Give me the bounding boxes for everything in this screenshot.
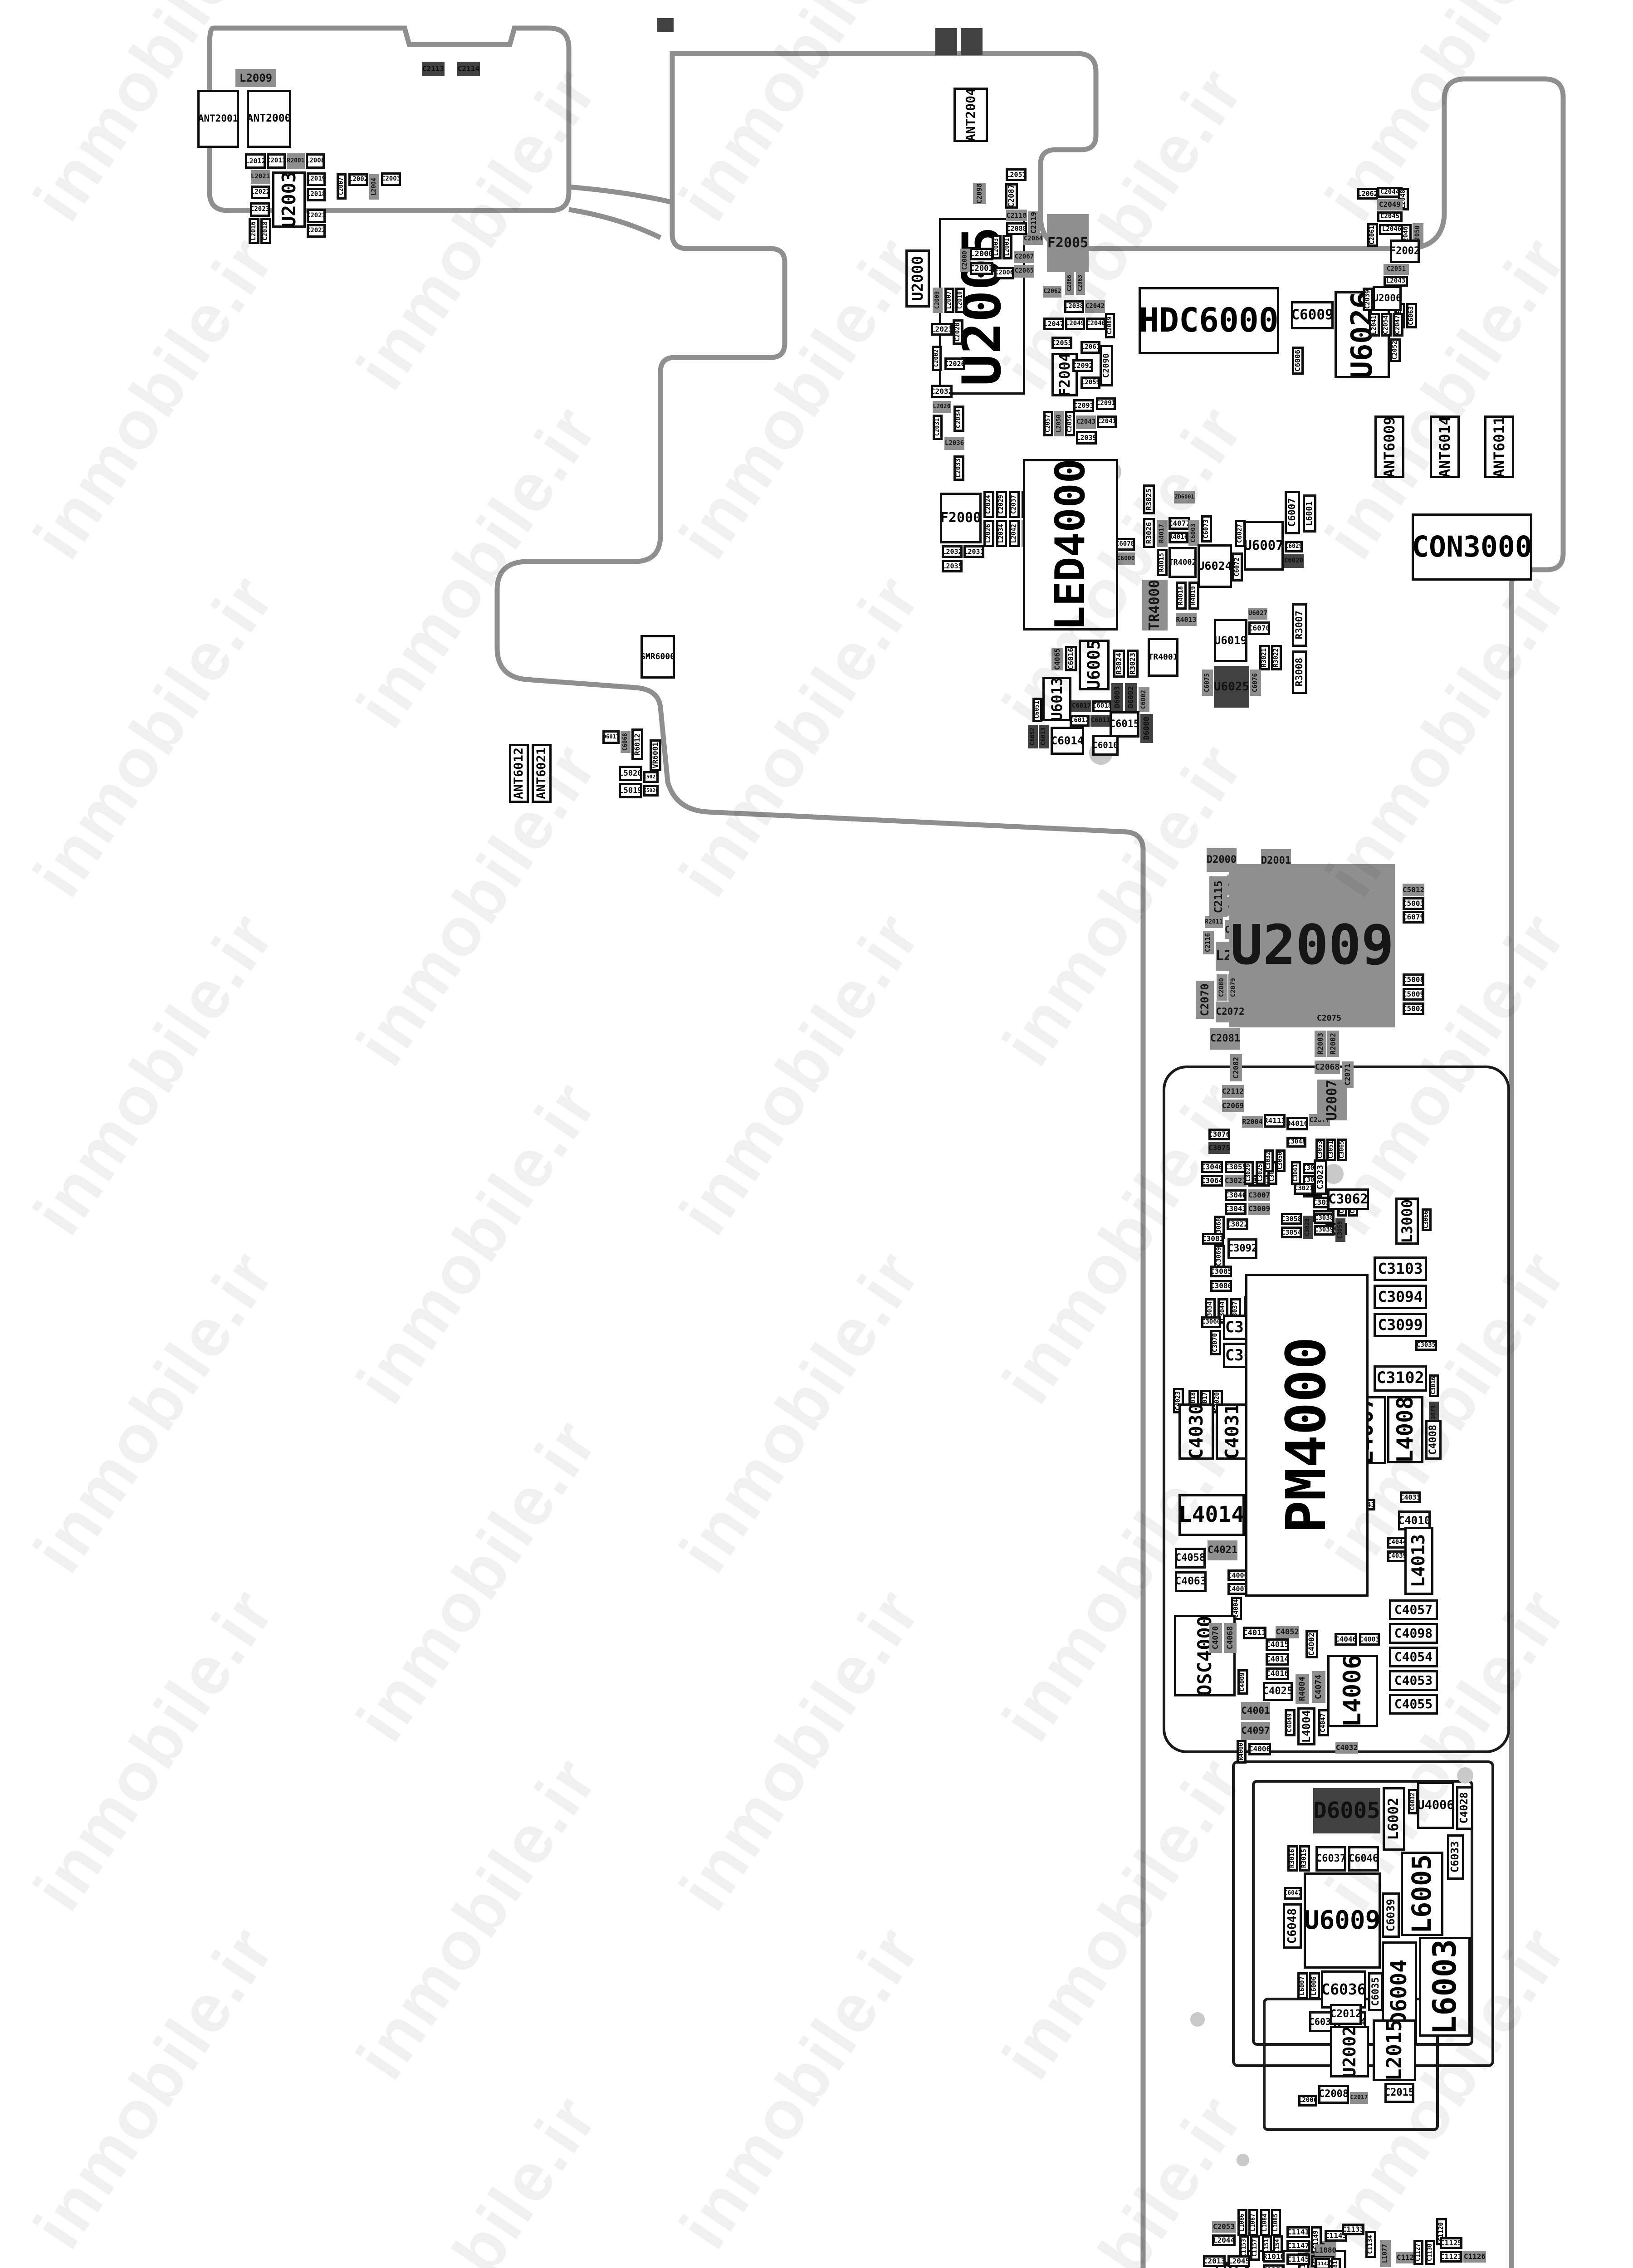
component-tr4002: TR4002 — [1169, 547, 1197, 578]
component-label: C3025 — [1258, 1164, 1263, 1182]
component-c6047: C6047 — [1284, 1887, 1302, 1900]
component-label: C2119 — [1030, 212, 1037, 234]
component-label: C6011 — [1091, 718, 1110, 723]
component-label: U6007 — [1244, 539, 1283, 552]
component-c6076: C6076 — [1250, 670, 1261, 696]
component-l1077: L1077 — [1380, 2240, 1391, 2267]
component-zd6001: ZD6001 — [1174, 491, 1195, 503]
component-c6037: C6037 — [1315, 1846, 1346, 1872]
component-c3085: C3085 — [1210, 1266, 1232, 1277]
component-label: L2019 — [307, 176, 326, 182]
component-label: R4113 — [1264, 1117, 1286, 1124]
component-label: C3028 — [1305, 1218, 1310, 1236]
component-label: C2009 — [935, 291, 940, 309]
component-label: C2028 — [955, 323, 961, 342]
component-c4015: C4015 — [1266, 1638, 1289, 1651]
component-label: C1125 — [1440, 2239, 1462, 2246]
component-c2032: C2032 — [931, 385, 953, 398]
components-layer: L2009ANT2001ANT2000L2012C2011R2001L2008L… — [0, 0, 1633, 2268]
component-label: TR4000 — [1148, 580, 1161, 631]
component-l2061: L2061 — [1081, 341, 1100, 354]
component-label: C2037 — [1011, 495, 1017, 514]
component-label: C2033 — [956, 459, 962, 478]
component-c2080: C2080 — [1217, 974, 1227, 1001]
component-r3008: R3008 — [1292, 650, 1307, 694]
component-c2026: C2026 — [944, 357, 965, 370]
component-r3026: R3026 — [1143, 518, 1155, 548]
component-c3081: C3081 — [1202, 1233, 1224, 1245]
component-c6016: C6016 — [1065, 646, 1077, 671]
component-c4097: C4097 — [1241, 1722, 1270, 1740]
component-label: L2036 — [945, 440, 964, 446]
component-label: C3043 — [1225, 1205, 1247, 1212]
component-label: CON3000 — [1412, 533, 1532, 561]
component-c4009: C4009 — [1237, 1669, 1248, 1695]
component-l2006: L2006 — [1298, 2095, 1317, 2107]
component-l2016: L2016 — [249, 218, 259, 244]
component-c6013: C6013 — [1039, 725, 1049, 748]
component-label: R3025 — [1145, 489, 1152, 510]
component-label: C2024 — [986, 495, 992, 514]
component-label: ANT6014 — [1438, 416, 1452, 478]
component-label: L4008 — [1395, 1396, 1416, 1463]
component-l6002: L6002 — [1383, 1787, 1405, 1851]
component-label: ANT6011 — [1492, 416, 1506, 478]
component-d6017: D6017 — [602, 730, 620, 744]
component-c2052: C2052 — [1390, 338, 1401, 362]
component-label: L6001 — [1305, 501, 1313, 526]
component-u2009: U2009 — [1229, 864, 1395, 1027]
component-label: C1141 — [1287, 2229, 1309, 2235]
component-label: L2049 — [1066, 321, 1085, 327]
component-u4006: U4006 — [1417, 1782, 1454, 1829]
component-ant6011: ANT6011 — [1484, 415, 1514, 478]
component-label: C2039 — [1365, 290, 1371, 309]
component-c3035: C3035 — [1415, 1340, 1437, 1351]
component-label: U6027 — [1248, 611, 1267, 616]
component-c2024: C2024 — [983, 491, 994, 518]
component-label: L2038 — [1065, 303, 1084, 309]
component-label: L6005 — [1409, 1854, 1434, 1934]
component-label: C4052 — [1276, 1628, 1299, 1636]
component-label: C6033 — [1451, 1841, 1461, 1872]
component-label: C4044 — [1388, 1540, 1407, 1545]
component-c3016: C3016 — [1429, 1374, 1439, 1397]
component-r4017: R4017 — [1157, 520, 1168, 547]
component-label: L2022 — [251, 189, 270, 195]
component-label: C6016 — [1067, 648, 1074, 670]
component-label: C6046 — [1349, 1854, 1379, 1864]
component-c2088: C2088 — [1006, 222, 1027, 235]
component-c2049: C2049 — [1377, 199, 1403, 210]
component-l2057: L2057 — [1006, 168, 1027, 181]
component-c2113: C2113 — [422, 62, 445, 76]
component-l2023: L2023 — [931, 323, 953, 336]
component-label: C3055 — [1225, 1163, 1247, 1170]
component-ant2001: ANT2001 — [197, 90, 239, 148]
component-label: L4014 — [1179, 1505, 1245, 1525]
component-label: C3023 — [1316, 1165, 1324, 1189]
component-label: C2052 — [1392, 341, 1398, 360]
component-c3061: C3061 — [1291, 1161, 1301, 1185]
component-label: F2004 — [1058, 353, 1071, 396]
component-label: L2044 — [1213, 2237, 1235, 2244]
component-c5009: C5009 — [1403, 988, 1424, 1001]
component-c1142: C1142 — [1315, 2258, 1330, 2268]
component-c4033: C4033 — [1400, 1491, 1421, 1503]
component-c4063: C4063 — [1175, 1571, 1207, 1592]
component-label: L2015 — [1385, 2019, 1404, 2081]
component-c4098: C4098 — [1389, 1623, 1438, 1644]
component-c2022: C2022 — [307, 224, 326, 238]
component-r3022: R3022 — [1271, 645, 1282, 670]
component-label: D4016 — [1286, 1120, 1308, 1127]
component-label: L2061 — [1081, 344, 1100, 350]
component-label: C2057 — [1046, 415, 1051, 432]
component-label: R4013 — [1176, 616, 1196, 623]
component-c2012: C2012 — [1330, 2004, 1362, 2025]
component-c3048: C3048 — [1286, 1137, 1306, 1148]
component-label: C2081 — [1210, 1034, 1240, 1044]
component-label: L2041 — [1371, 315, 1377, 334]
component-c2093: C2093 — [1073, 399, 1094, 412]
component-label: C2021 — [307, 213, 326, 219]
component-c2033: C2033 — [953, 455, 964, 481]
component-label: C6072 — [1234, 557, 1240, 577]
component-u6005: U6005 — [1079, 640, 1110, 690]
component-label: C4055 — [1394, 1698, 1433, 1711]
component-c2092: C2092 — [1072, 359, 1093, 372]
component-label: C6068 — [623, 733, 628, 751]
component-c4046: C4046 — [1335, 1633, 1357, 1646]
component-label: C3059 — [1338, 1221, 1343, 1239]
component-c2114: C2114 — [457, 62, 480, 76]
component-l2007: L2007 — [944, 288, 954, 313]
component-label: C2063 — [1078, 275, 1083, 291]
component-label: L1087 — [1251, 2214, 1256, 2231]
component-r4015: R4015 — [1157, 549, 1168, 576]
component-c2013: C2013 — [1203, 2255, 1226, 2267]
component-c2037: C2037 — [1009, 491, 1020, 518]
component-c2075: C2075 — [1316, 1012, 1342, 1025]
component-label: C4033 — [1400, 1494, 1420, 1501]
component-label: C2010 — [958, 291, 963, 309]
component-label: L2046 — [1382, 226, 1401, 232]
component-label: U6005 — [1086, 640, 1102, 690]
component-u2003: U2003 — [272, 171, 306, 228]
component-label: C2007 — [339, 177, 344, 195]
component-label: C3027 — [1225, 1177, 1247, 1184]
component-c4008: C4008 — [1425, 1420, 1442, 1460]
component-c4025: C4025 — [1263, 1682, 1293, 1701]
component-c2068: C2068 — [1315, 1061, 1340, 1074]
component-label: C4097 — [1241, 1726, 1270, 1735]
component-label: HDC6000 — [1139, 305, 1279, 336]
component-label: C1145 — [1287, 2256, 1309, 2263]
component-label: L2004 — [372, 178, 377, 196]
component-c2055: C2055 — [1051, 337, 1072, 349]
component-label: C6037 — [1316, 1854, 1346, 1864]
component-label: R4019 — [1191, 586, 1197, 605]
component-c6063: C6063 — [1406, 303, 1417, 328]
component-label: C2091 — [1096, 401, 1115, 406]
component-label: R2001 — [287, 158, 304, 164]
component-label: C4028 — [1460, 1792, 1470, 1823]
component-c3092: C3092 — [1227, 1238, 1257, 1259]
component-d4016: D4016 — [1286, 1117, 1308, 1130]
component-label: C2113 — [422, 65, 444, 72]
component-c3053: C3053 — [1315, 1139, 1325, 1161]
component-label: C2093 — [1073, 402, 1094, 409]
component-label: L2021 — [251, 174, 270, 180]
component-c2056: C2056 — [1065, 411, 1075, 436]
component-label: C2013 — [1203, 2258, 1225, 2264]
component-l2059: L2059 — [1081, 376, 1100, 389]
component-label: L5019 — [619, 787, 642, 794]
component-c4001: C4001 — [1241, 1702, 1270, 1720]
component-label: C3061 — [1293, 1164, 1299, 1182]
component-label: R2003 — [1317, 1033, 1324, 1055]
component-label: C6018 — [1093, 703, 1112, 709]
component-label: R3026 — [1145, 522, 1152, 544]
component-label: C1121 — [1440, 2253, 1462, 2260]
component-label: C4001 — [1241, 1706, 1270, 1716]
component-label: L2000 — [970, 250, 993, 258]
component-c3039: C3039 — [1314, 1225, 1335, 1236]
component-c6007: C6007 — [1285, 491, 1300, 534]
component-c3028: C3028 — [1303, 1216, 1313, 1239]
component-l2018: L2018 — [307, 188, 326, 201]
component-c2031: C2031 — [933, 415, 943, 440]
component-c6009: C6009 — [1291, 301, 1334, 329]
component-l2002: L2002 — [348, 173, 368, 186]
component-c4028: C4028 — [1456, 1786, 1473, 1830]
component-l2001: L2001 — [1002, 235, 1012, 259]
component-label: C3021 — [1294, 1186, 1313, 1192]
component-label: F2000 — [940, 512, 981, 525]
component-l2062: L2062 — [1357, 188, 1378, 200]
component-label: C2002 — [934, 349, 939, 367]
component-l5020: L5020 — [619, 766, 642, 781]
component-label: L2007 — [947, 291, 952, 309]
component-label: C2098 — [976, 183, 983, 204]
component-c2007: C2007 — [337, 173, 347, 200]
component-c3009: C3009 — [1248, 1203, 1270, 1215]
component-label: SMR6000 — [640, 653, 675, 660]
component-c2089: C2089 — [1105, 313, 1115, 338]
component-c2029: C2029 — [996, 491, 1007, 518]
component-label: C2011 — [267, 158, 286, 164]
component-c2087: C2087 — [1005, 183, 1018, 209]
component-label: C4010 — [1398, 1515, 1431, 1526]
component-label: R1010 — [1263, 2253, 1285, 2260]
component-c6000: C6000 — [1117, 552, 1135, 565]
component-label: C3039 — [1315, 1227, 1334, 1233]
component-c6017: C6017 — [1071, 700, 1091, 712]
component-label: R3007 — [1295, 611, 1304, 639]
component-c6073: C6073 — [1201, 515, 1212, 543]
component-c2054: C2054 — [1381, 313, 1392, 337]
component-label: ZD6001 — [1174, 494, 1194, 499]
component-l3000: L3000 — [1395, 1198, 1419, 1245]
component-label: C1133 — [1342, 2226, 1364, 2233]
component-c4065: C4065 — [1051, 648, 1063, 670]
component-label: C3103 — [1378, 1261, 1423, 1276]
component-c5003: C5003 — [1403, 897, 1424, 910]
component-c2062: C2062 — [1043, 286, 1061, 298]
component-r6012: R6012 — [631, 728, 643, 760]
component-c2009: C2009 — [933, 288, 943, 313]
component-c2119: C2119 — [1028, 211, 1040, 234]
component-l2045: L2045 — [1227, 2255, 1250, 2267]
component-label: C6000 — [1117, 556, 1134, 562]
component-label: C2065 — [1015, 268, 1034, 274]
component-label: C3009 — [1248, 1205, 1270, 1212]
component-l5019: L5019 — [619, 783, 642, 798]
component-c2066: C2066 — [1065, 271, 1074, 295]
component-c2015: C2015 — [1384, 2083, 1414, 2103]
component-label: C2082 — [1232, 1057, 1239, 1079]
component-label: C4074 — [1315, 1675, 1322, 1699]
component-label: C4070 — [1212, 1626, 1219, 1649]
component-l2009: L2009 — [235, 69, 276, 87]
component-label: L2018 — [307, 191, 326, 197]
component-c2043: C2043 — [1076, 415, 1096, 429]
component-ant6014: ANT6014 — [1430, 415, 1460, 478]
component-c6029: C6029 — [1285, 541, 1303, 552]
component-label: C1126 — [1464, 2253, 1486, 2260]
component-c2034: C2034 — [953, 406, 964, 432]
component-l2022: L2022 — [251, 186, 270, 199]
component-c6011: C6011 — [1090, 715, 1110, 727]
component-r3025: R3025 — [1143, 484, 1155, 514]
component-label: L4006 — [1341, 1655, 1364, 1727]
component-c1130: C1130 — [1425, 2240, 1435, 2265]
component-label: F2002 — [1390, 247, 1420, 256]
component-r2003: R2003 — [1315, 1031, 1326, 1057]
component-label: D6017 — [603, 734, 619, 739]
component-label: R3015 — [1301, 1849, 1307, 1868]
component-label: L1084 — [1262, 2214, 1268, 2231]
component-label: C6063 — [1408, 306, 1414, 325]
component-label: R2002 — [1330, 1033, 1336, 1055]
component-label: C2034 — [956, 409, 962, 428]
component-c2008: C2008 — [1318, 2085, 1349, 2104]
component-label: C2072 — [1216, 1007, 1244, 1017]
component-label: U2002 — [1341, 2026, 1358, 2077]
component-l2015: L2015 — [1373, 2019, 1416, 2081]
component-label: U6025 — [1214, 681, 1249, 693]
component-label: C5003 — [1403, 900, 1424, 907]
component-label: L2039 — [1076, 435, 1096, 441]
component-label: C2116 — [1205, 933, 1211, 952]
component-label: C2088 — [1006, 225, 1027, 232]
component-c4077: C4077 — [1169, 517, 1190, 530]
component-c2071: C2071 — [1342, 1061, 1354, 1088]
component-label: L2047 — [1043, 321, 1064, 327]
component-l6001: L6001 — [1303, 494, 1316, 533]
component-label: C6047 — [1284, 1891, 1301, 1896]
component-u6025: U6025 — [1214, 666, 1249, 708]
component-c1147: C1147 — [1286, 2240, 1310, 2252]
component-l2043: L2043 — [1384, 276, 1408, 287]
component-label: TR4002 — [1169, 559, 1196, 566]
component-c3050: C3050 — [1276, 1149, 1286, 1172]
component-l2036: L2036 — [944, 437, 964, 450]
component-c1159: C1159 — [1263, 2264, 1285, 2268]
component-label: R3022 — [1273, 648, 1279, 667]
component-label: C6017 — [1072, 703, 1091, 709]
component-label: L2009 — [240, 73, 272, 83]
component-label: C2041 — [1097, 419, 1116, 425]
component-label: L2045 — [1228, 2258, 1250, 2264]
component-c6003: C6003 — [1188, 520, 1199, 546]
component-label: C2023 — [250, 206, 269, 212]
component-c4002: C4002 — [1305, 1630, 1318, 1658]
component-c4030: C4030 — [1178, 1403, 1214, 1460]
component-c3058: C3058 — [1281, 1213, 1302, 1225]
component-tr4000: TR4000 — [1142, 580, 1168, 631]
component-c3075: C3075 — [1208, 1142, 1230, 1154]
component-c2047: C2047 — [1393, 313, 1403, 337]
component-l1081: L1081 — [1331, 2258, 1341, 2268]
component-label: C3064 — [1201, 1177, 1223, 1184]
component-l2044: L2044 — [1212, 2234, 1236, 2246]
component-c2002: C2002 — [932, 346, 942, 371]
component-c4052: C4052 — [1276, 1626, 1299, 1638]
component-vr6001: VR6001 — [650, 739, 661, 771]
component-c4000: C4000 — [1248, 1743, 1271, 1755]
component-c2079: C2079 — [1228, 974, 1239, 1001]
component-label: C4014 — [1266, 1656, 1289, 1663]
component-c6020: C6020 — [1284, 554, 1304, 568]
component-label: C3081 — [1202, 1235, 1224, 1242]
component-c6052: C6052 — [1028, 725, 1038, 748]
component-label: L1080 — [1315, 2247, 1336, 2253]
component-l1084: L1084 — [1260, 2209, 1270, 2236]
component-u6019: U6019 — [1214, 619, 1247, 662]
component-label: C2087 — [1008, 184, 1015, 207]
component-label: C3032 — [1266, 1152, 1271, 1169]
component-c6002: C6002 — [1139, 687, 1149, 712]
component-label: R3021 — [1261, 648, 1267, 667]
component-l4004: L4004 — [1297, 1707, 1315, 1745]
component-c3007: C3007 — [1248, 1189, 1270, 1201]
component-label: C3075 — [1208, 1144, 1230, 1151]
component-label: C2067 — [1015, 254, 1034, 260]
component-label: C6032 — [1410, 1793, 1416, 1810]
component-label: C3070 — [1213, 1333, 1218, 1352]
component-r4004: R4004 — [1296, 1674, 1309, 1704]
component-label: C2090 — [1102, 353, 1110, 378]
component-c6046: C6046 — [1348, 1846, 1379, 1872]
component-label: C2047 — [1395, 315, 1401, 334]
component-c2039: C2039 — [1363, 288, 1374, 311]
component-label: C4030 — [1188, 1403, 1205, 1459]
component-c6012: C6012 — [1070, 715, 1090, 727]
component-label: U2003 — [280, 171, 298, 227]
component-label: C3007 — [1248, 1192, 1270, 1198]
component-c4021: C4021 — [1208, 1540, 1237, 1560]
component-label: C3086 — [1210, 1282, 1232, 1289]
component-l2042: L2042 — [1009, 520, 1020, 547]
component-label: C4057 — [1394, 1604, 1433, 1616]
component-c2112: C2112 — [1222, 1085, 1244, 1098]
component-r2001: R2001 — [287, 153, 305, 169]
component-c2069: C2069 — [1222, 1100, 1244, 1112]
component-label: L1085 — [1273, 2214, 1279, 2231]
component-c4003: C4003 — [1359, 1633, 1380, 1646]
